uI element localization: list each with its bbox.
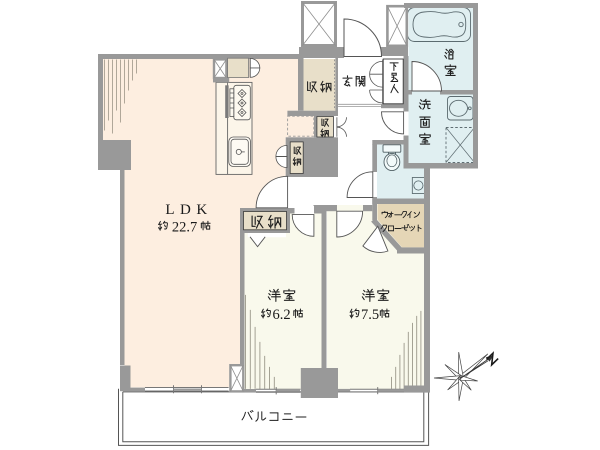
svg-text:6.2: 6.2 xyxy=(272,307,290,323)
svg-text:LDK: LDK xyxy=(165,202,212,218)
svg-text:22.7: 22.7 xyxy=(172,219,197,235)
svg-text:7.5: 7.5 xyxy=(361,307,379,323)
